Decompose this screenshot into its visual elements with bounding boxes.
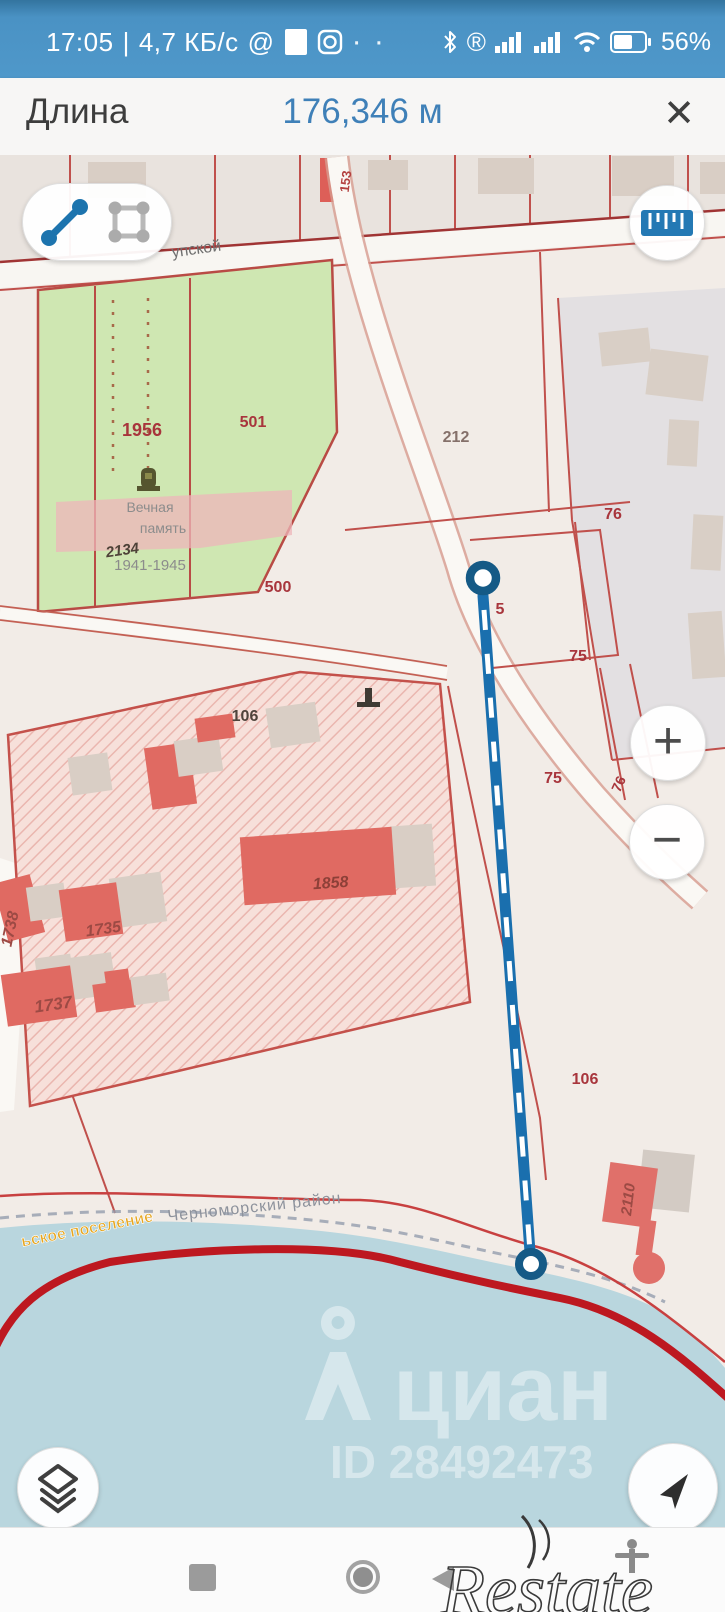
parcel-label: 501: [240, 414, 267, 431]
battery-icon: [610, 31, 652, 53]
plus-icon: +: [653, 715, 683, 767]
memorial-label: Вечная: [126, 499, 173, 515]
map-container: циан ID 28492473 153 1956 501 212 76 Веч…: [0, 155, 725, 1527]
home-button[interactable]: [346, 1560, 380, 1594]
back-button[interactable]: [432, 1567, 454, 1591]
bluetooth-icon: [442, 30, 458, 54]
ruler-icon: [639, 207, 695, 239]
status-divider: |: [123, 27, 130, 58]
cian-brand: циан: [393, 1338, 613, 1440]
wifi-icon: [573, 31, 601, 53]
memorial-years-label: 1941-1945: [114, 557, 186, 574]
parcel-label: 106: [572, 1071, 599, 1088]
map-canvas[interactable]: циан ID 28492473 153 1956 501 212 76 Веч…: [0, 155, 725, 1527]
signal-strength-icon-1: [495, 30, 525, 54]
parcel-label: 1956: [122, 420, 162, 440]
parcel-label: 75: [544, 770, 562, 787]
building-label: 1858: [312, 874, 349, 893]
roaming-icon: ®: [467, 27, 486, 58]
measure-point-end[interactable]: [519, 1252, 543, 1276]
parcel-label: 106: [232, 708, 259, 725]
memorial-label: память: [140, 520, 186, 536]
phone-screen: 17:05 | 4,7 КБ/с @ · · ®: [0, 0, 725, 1612]
measure-point-start[interactable]: [470, 565, 496, 591]
more-notifications-icon: · ·: [352, 25, 386, 59]
minus-icon: −: [652, 814, 682, 866]
parcel-label: 75: [569, 648, 587, 665]
status-bar: 17:05 | 4,7 КБ/с @ · · ®: [0, 0, 725, 78]
line-measure-tool-icon[interactable]: [38, 195, 92, 249]
parcel-label: 500: [265, 579, 292, 596]
notification-square-icon: [284, 28, 308, 56]
locate-button[interactable]: [628, 1443, 718, 1527]
cian-id: ID 28492473: [330, 1436, 593, 1488]
camera-app-icon: [317, 29, 343, 55]
recents-button[interactable]: [189, 1564, 216, 1591]
parcel-label: 212: [443, 429, 470, 446]
ruler-button[interactable]: [629, 185, 705, 261]
measure-mode-toolbar: [22, 183, 172, 261]
close-icon[interactable]: ✕: [663, 88, 695, 140]
zoom-in-button[interactable]: +: [630, 705, 706, 781]
navigation-arrow-icon: [650, 1465, 696, 1511]
layers-icon: [35, 1462, 81, 1514]
parcel-label: 5: [496, 601, 505, 618]
measure-value: 176,346 м: [0, 92, 725, 132]
battery-percent: 56%: [661, 28, 711, 57]
android-nav-bar: Restate: [0, 1527, 725, 1612]
signal-strength-icon-2: [534, 30, 564, 54]
area-measure-tool-icon[interactable]: [102, 195, 156, 249]
parcel-label: 76: [604, 506, 622, 523]
zoom-out-button[interactable]: −: [629, 804, 705, 880]
layers-button[interactable]: [17, 1447, 99, 1527]
statue-icon: [615, 1539, 649, 1573]
parcel-label: 153: [337, 170, 355, 193]
status-net-speed: 4,7 КБ/с: [139, 27, 239, 58]
status-time: 17:05: [46, 27, 114, 58]
at-icon: @: [248, 27, 275, 58]
measure-header: Длина 176,346 м ✕: [0, 78, 725, 155]
restate-text: Restate: [440, 1550, 653, 1612]
